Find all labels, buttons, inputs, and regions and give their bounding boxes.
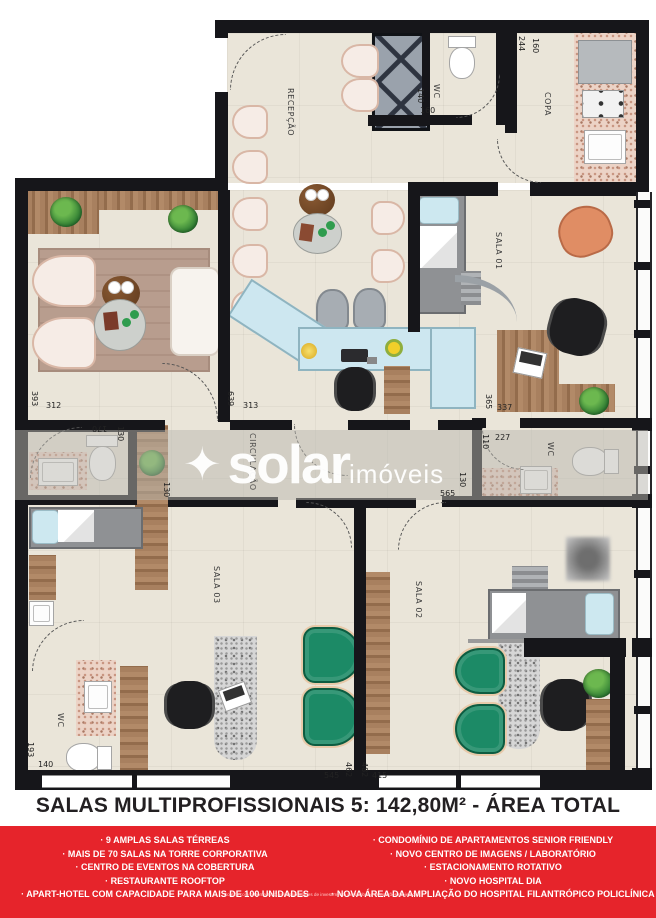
watermark-brand: solar	[228, 437, 349, 492]
equipment	[566, 537, 610, 581]
window-mullion	[132, 772, 137, 789]
waiting-chair	[341, 78, 379, 112]
window-mullion	[634, 200, 650, 208]
bed-blanket	[419, 226, 457, 268]
wall-segment	[354, 498, 366, 790]
wall-segment	[530, 182, 648, 196]
plant	[579, 387, 609, 415]
desk-panel	[384, 366, 410, 414]
dimension: 130	[458, 472, 467, 487]
window-mullion	[634, 570, 650, 578]
dimension: 160	[531, 38, 540, 53]
guest-chair	[353, 288, 386, 329]
wall-segment	[15, 178, 228, 191]
dimension: 365	[484, 394, 493, 409]
waiting-chair	[232, 105, 268, 139]
bed-blanket	[58, 510, 94, 542]
green-chair	[303, 688, 361, 746]
dimension: 227	[495, 433, 510, 442]
waiting-chair	[341, 44, 379, 78]
sideboard	[366, 572, 390, 754]
sparkle-icon: ✦	[183, 441, 222, 487]
plate	[317, 189, 329, 201]
coffee-table	[299, 184, 335, 216]
wall-segment	[412, 182, 498, 196]
watermark-suffix: imóveis	[349, 461, 444, 487]
green-chair	[455, 648, 505, 694]
wall-segment	[218, 190, 230, 422]
dimension: 462	[344, 762, 353, 777]
plate	[121, 281, 134, 294]
floor-plan: RECEPÇÃO COPA WC SALA 01 WC CIRCULAÇÃO S…	[0, 0, 656, 918]
room-label-wc-bottom: WC	[56, 713, 65, 728]
watermark: ✦ solar imóveis	[183, 428, 444, 500]
wall-segment	[520, 418, 636, 428]
plan-title: SALAS MULTIPROFISSIONAIS 5: 142,80M² - Á…	[0, 794, 656, 822]
waiting-chair	[232, 244, 268, 278]
dimension: 140	[416, 88, 425, 103]
cup	[122, 318, 131, 327]
plant	[50, 197, 82, 227]
dimension: 170	[92, 424, 107, 433]
cabinet	[29, 555, 56, 600]
cup	[326, 221, 335, 230]
dimension: 110	[481, 434, 490, 449]
wall-segment	[636, 20, 649, 192]
dimension: 130	[116, 426, 125, 441]
sofa	[170, 267, 220, 356]
dimension: 313	[243, 401, 258, 410]
side-table	[94, 299, 146, 351]
green-chair	[303, 627, 361, 683]
office-chair	[543, 679, 589, 731]
window-mullion	[36, 772, 42, 789]
wall-segment	[368, 115, 428, 126]
cup	[130, 310, 139, 319]
feature-item: · CENTRO DE EVENTOS NA COBERTURA	[75, 861, 254, 875]
bedside-cabinet	[512, 566, 548, 591]
armchair	[32, 317, 96, 369]
feature-item: · MAIS DE 70 SALAS NA TORRE CORPORATIVA	[62, 848, 267, 862]
desk-lamp	[301, 343, 317, 359]
wc-sink	[84, 681, 112, 713]
office-chair	[337, 367, 373, 411]
features-banner: · 9 AMPLAS SALAS TÉRREAS · MAIS DE 70 SA…	[0, 826, 656, 918]
waiting-chair	[371, 249, 405, 283]
room-label-sala02: SALA 02	[414, 581, 423, 619]
feature-item: · 9 AMPLAS SALAS TÉRREAS	[100, 834, 229, 848]
window-mullion	[634, 330, 650, 338]
dimension: 140	[38, 760, 53, 769]
book	[103, 311, 119, 330]
dimension: 639	[226, 391, 235, 406]
monitor	[341, 349, 368, 362]
room-label-recepcao: RECEPÇÃO	[286, 88, 295, 136]
room-label-wc-right: WC	[546, 442, 555, 457]
wall-segment	[215, 92, 228, 190]
feature-item: · NOVO HOSPITAL DIA	[444, 875, 541, 889]
features-right: · CONDOMÍNIO DE APARTAMENTOS SENIOR FRIE…	[330, 826, 656, 918]
wall-segment	[215, 20, 228, 38]
room-label-wc-top: WC	[432, 84, 441, 99]
room-label-copa: COPA	[543, 92, 552, 116]
sideboard	[99, 190, 228, 210]
feature-item: · ESTACIONAMENTO ROTATIVO	[424, 861, 562, 875]
bed-pillow	[585, 593, 614, 635]
toilet-tank	[97, 746, 112, 770]
dimension: 160	[420, 106, 435, 115]
dimension: 545	[324, 771, 339, 780]
room-label-sala01: SALA 01	[494, 232, 503, 270]
dimension: 130	[162, 482, 171, 497]
dimension: 482	[360, 762, 369, 777]
features-left: · 9 AMPLAS SALAS TÉRREAS · MAIS DE 70 SA…	[0, 826, 330, 918]
small-sink	[29, 601, 54, 626]
phone	[367, 357, 377, 364]
waiting-chair	[371, 201, 405, 235]
wall-corner	[628, 770, 648, 790]
window-mullion	[634, 706, 650, 714]
waiting-chair	[232, 197, 268, 231]
page: RECEPÇÃO COPA WC SALA 01 WC CIRCULAÇÃO S…	[0, 0, 656, 918]
room-label-sala03: SALA 03	[212, 566, 221, 604]
green-chair	[455, 704, 505, 754]
plate	[108, 281, 121, 294]
bed-pillow	[419, 197, 459, 224]
flower-vase	[385, 339, 403, 357]
cup	[318, 228, 327, 237]
window-mullion	[540, 772, 546, 789]
dimension: 393	[30, 391, 39, 406]
feature-item: · NOVO CENTRO DE IMAGENS / LABORATÓRIO	[390, 848, 596, 862]
dimension: 244	[517, 36, 526, 51]
feature-item: · CONDOMÍNIO DE APARTAMENTOS SENIOR FRIE…	[373, 834, 613, 848]
window-mullion	[456, 772, 461, 789]
window-mullion	[632, 638, 652, 657]
wall-segment	[215, 20, 648, 33]
window-mullion	[230, 772, 236, 789]
dimension: 312	[46, 401, 61, 410]
dimension: 337	[497, 403, 512, 412]
toilet-bowl	[66, 743, 101, 772]
bed-blanket	[492, 593, 526, 633]
reception-desk-return	[430, 327, 476, 409]
window-mullion	[634, 262, 650, 270]
dimension: 415	[372, 771, 387, 780]
wall-segment	[408, 182, 420, 332]
book	[299, 223, 314, 242]
office-chair	[167, 681, 212, 729]
cabinet	[120, 666, 148, 776]
copa-sink	[584, 130, 626, 164]
feature-item: · RESTAURANTE ROOFTOP	[105, 875, 225, 889]
dimension: 193	[26, 742, 35, 757]
waiting-chair	[232, 150, 268, 184]
copa-fridge	[578, 40, 632, 84]
plant	[168, 205, 198, 233]
copa-stove	[582, 90, 624, 118]
armchair	[32, 255, 96, 307]
footnote: *Confira com o Home Sítio as possibilida…	[222, 892, 421, 897]
plate	[305, 189, 317, 201]
bed-pillow	[32, 510, 59, 544]
reception-desk	[298, 327, 450, 371]
